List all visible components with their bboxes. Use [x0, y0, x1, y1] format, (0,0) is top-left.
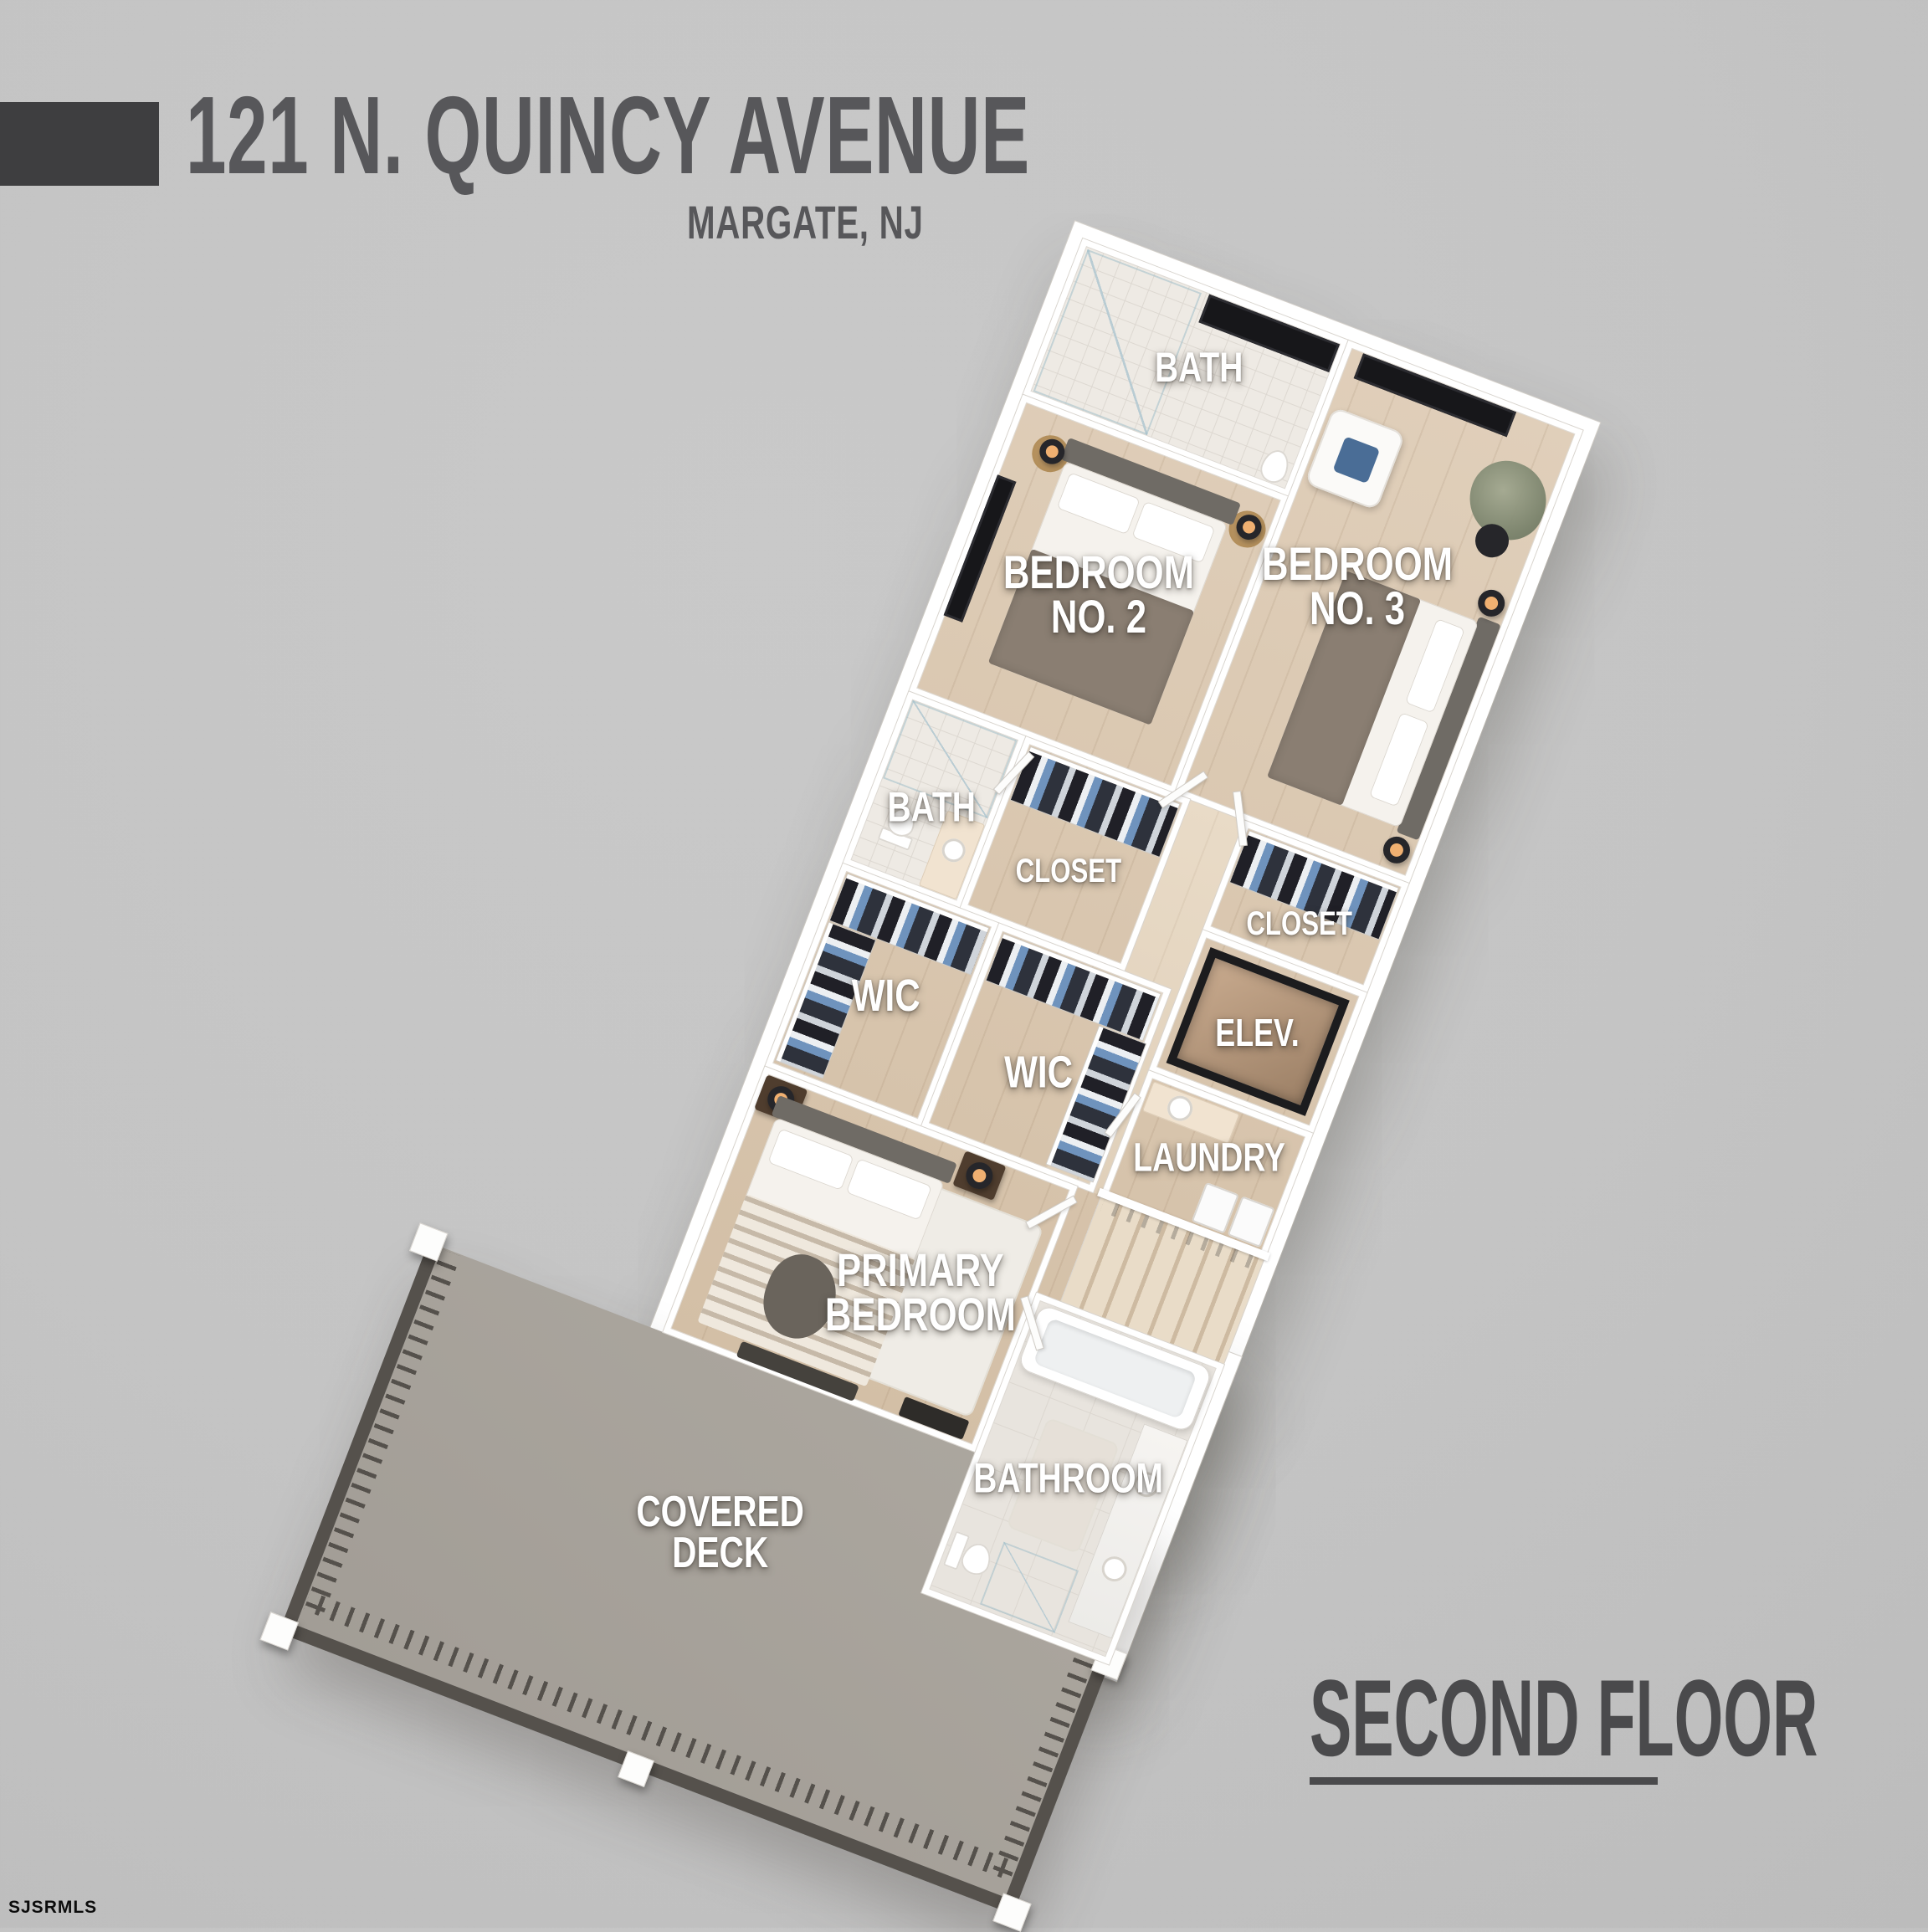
- label-primary-line2: BEDROOM: [825, 1292, 1016, 1336]
- label-bedroom-2-line1: BEDROOM: [1003, 550, 1194, 594]
- label-bedroom-2-line2: NO. 2: [1003, 594, 1194, 638]
- address-city: MARGATE, NJ: [687, 199, 924, 246]
- floor-title: SECOND FLOOR: [1310, 1663, 1818, 1772]
- label-deck-line2: DECK: [636, 1533, 804, 1574]
- label-bath-top: BATH: [1155, 348, 1243, 388]
- floorplan-page: { "header": { "address": "121 N. QUINCY …: [0, 0, 1928, 1928]
- label-primary-bedroom: PRIMARY BEDROOM: [825, 1248, 1016, 1336]
- label-bedroom-3-line2: NO. 3: [1262, 586, 1453, 630]
- floor-title-underline: [1310, 1777, 1658, 1785]
- label-bedroom-3-line1: BEDROOM: [1262, 541, 1453, 586]
- label-bathroom: BATHROOM: [973, 1458, 1163, 1499]
- label-closet-2: CLOSET: [1016, 855, 1122, 887]
- address-title: 121 N. QUINCY AVENUE: [186, 80, 1030, 191]
- deck-rail-balusters-left: [303, 1249, 461, 1619]
- label-covered-deck: COVERED DECK: [636, 1492, 804, 1575]
- label-wic-left: WIC: [852, 975, 920, 1017]
- label-bath-mid: BATH: [887, 788, 975, 828]
- label-bedroom-3: BEDROOM NO. 3: [1262, 541, 1453, 630]
- label-wic-right: WIC: [1004, 1052, 1073, 1094]
- label-primary-line1: PRIMARY: [825, 1248, 1016, 1292]
- title-accent-block: [0, 102, 159, 186]
- mls-watermark: SJSRMLS: [8, 1898, 97, 1918]
- deck-rail-balusters-bottom: [304, 1591, 1018, 1881]
- label-bedroom-2: BEDROOM NO. 2: [1003, 550, 1194, 638]
- label-closet-3: CLOSET: [1246, 908, 1352, 940]
- label-elevator: ELEV.: [1215, 1015, 1299, 1052]
- label-deck-line1: COVERED: [636, 1492, 804, 1533]
- label-laundry: LAUNDRY: [1133, 1139, 1285, 1177]
